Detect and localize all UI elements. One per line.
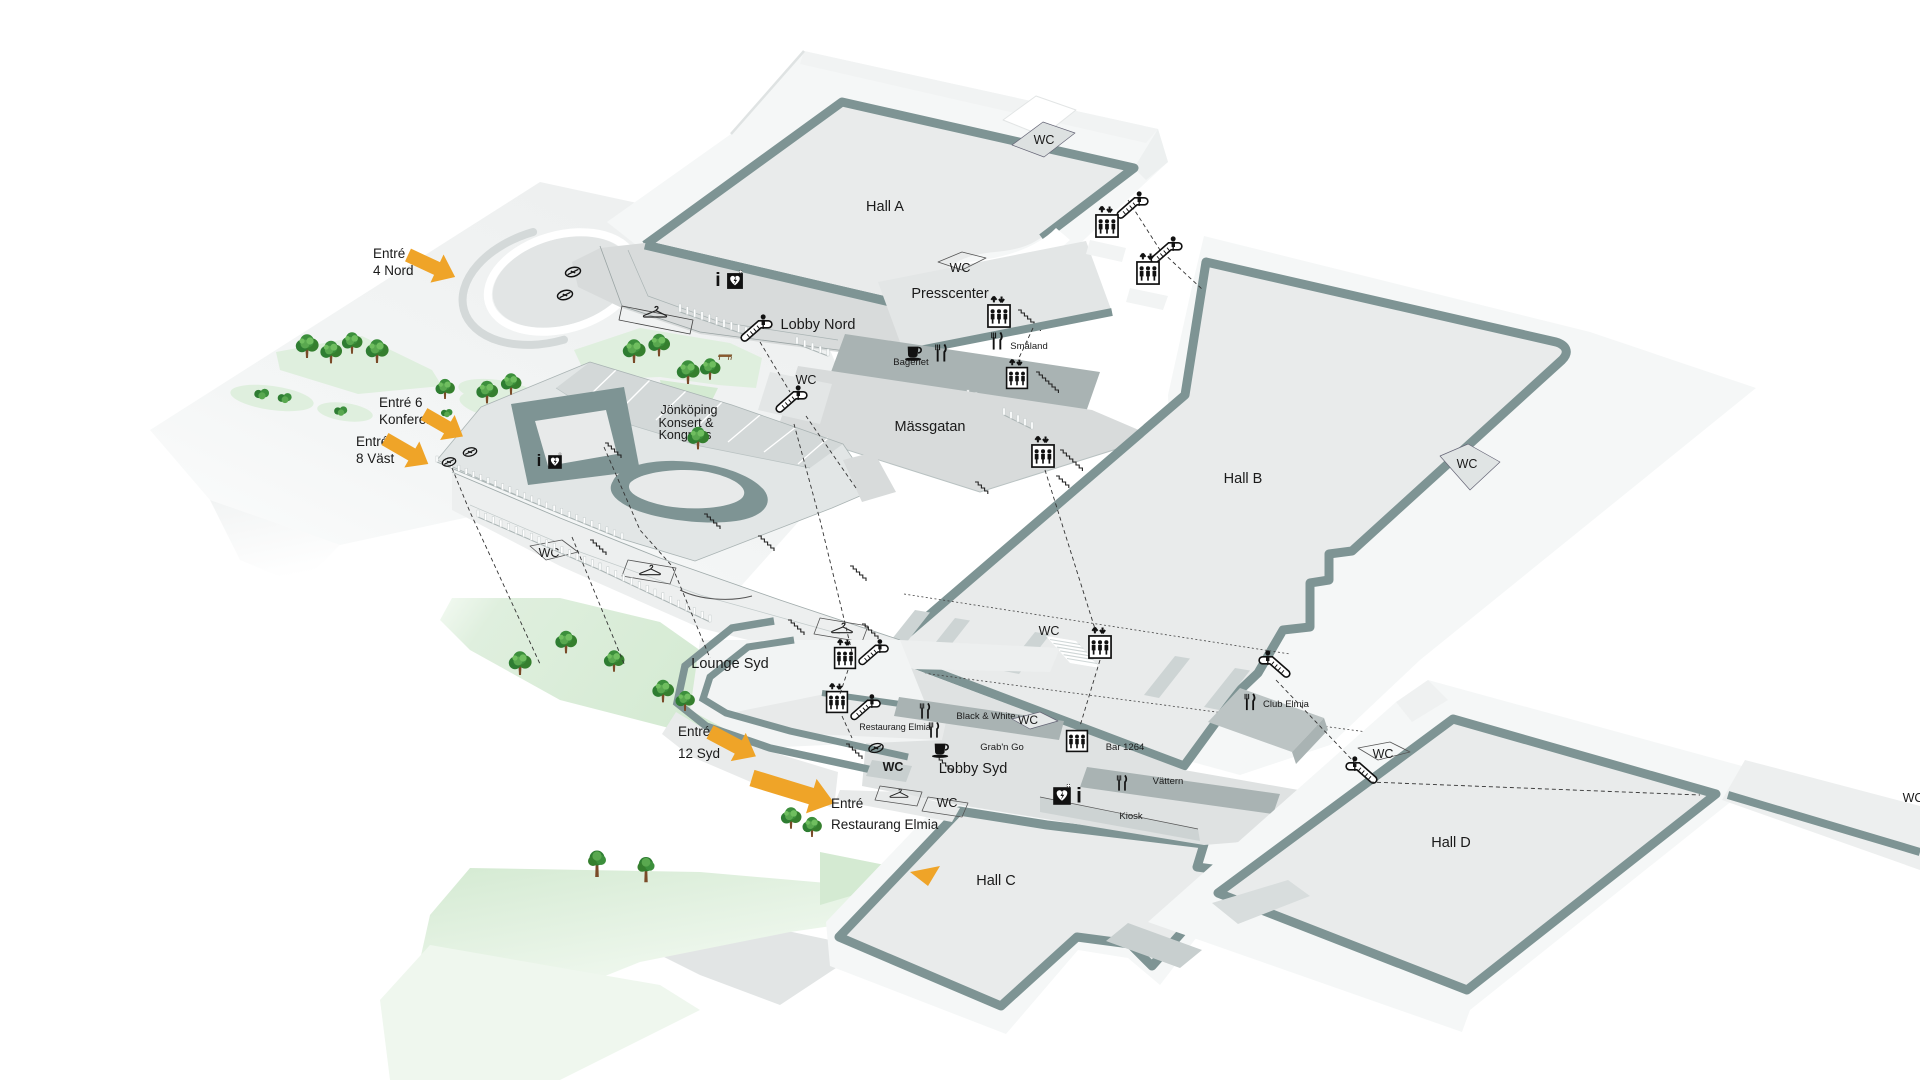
svg-text:Restaurang Elmia: Restaurang Elmia	[831, 817, 939, 832]
svg-text:Grab'n Go: Grab'n Go	[980, 742, 1024, 753]
svg-text:WC: WC	[1039, 624, 1060, 638]
svg-text:Entré 6: Entré 6	[379, 395, 423, 410]
svg-text:Mässgatan: Mässgatan	[895, 419, 966, 435]
svg-text:Entré: Entré	[831, 796, 863, 811]
svg-text:WC: WC	[796, 373, 817, 387]
svg-text:12 Syd: 12 Syd	[678, 746, 720, 761]
svg-text:Hall B: Hall B	[1224, 471, 1263, 487]
svg-text:Restaurang Elmia: Restaurang Elmia	[859, 722, 931, 732]
svg-text:Bar 1264: Bar 1264	[1106, 742, 1145, 753]
svg-text:WC: WC	[1373, 747, 1394, 761]
svg-text:i: i	[537, 451, 542, 470]
svg-text:Hall C: Hall C	[976, 873, 1015, 889]
svg-text:8 Väst: 8 Väst	[356, 451, 395, 466]
svg-text:Lobby Syd: Lobby Syd	[939, 761, 1008, 777]
svg-text:Hall A: Hall A	[866, 199, 904, 215]
svg-text:Entré: Entré	[356, 434, 388, 449]
svg-text:WC: WC	[950, 261, 971, 275]
svg-text:4 Nord: 4 Nord	[373, 263, 414, 278]
svg-text:Hall D: Hall D	[1431, 835, 1470, 851]
svg-text:WC: WC	[1034, 133, 1055, 147]
svg-text:WC: WC	[1903, 791, 1920, 805]
svg-text:WC: WC	[1018, 713, 1038, 727]
svg-text:Jönköping: Jönköping	[661, 403, 718, 417]
svg-text:WC: WC	[883, 760, 904, 774]
svg-text:WC: WC	[1457, 457, 1478, 471]
svg-text:Lobby Nord: Lobby Nord	[781, 317, 856, 333]
svg-text:Entré: Entré	[373, 246, 405, 261]
svg-text:Bageriet: Bageriet	[893, 357, 929, 368]
svg-text:i: i	[715, 269, 720, 291]
svg-text:Entré: Entré	[678, 724, 710, 739]
svg-text:Lounge Syd: Lounge Syd	[691, 656, 768, 672]
svg-text:WC: WC	[937, 796, 958, 810]
svg-text:Småland: Småland	[1010, 341, 1048, 352]
svg-text:Kiosk: Kiosk	[1119, 811, 1142, 822]
svg-text:i: i	[1076, 784, 1082, 807]
svg-text:Black & White: Black & White	[956, 711, 1015, 722]
svg-text:Vättern: Vättern	[1153, 776, 1184, 787]
svg-text:Presscenter: Presscenter	[911, 286, 989, 302]
